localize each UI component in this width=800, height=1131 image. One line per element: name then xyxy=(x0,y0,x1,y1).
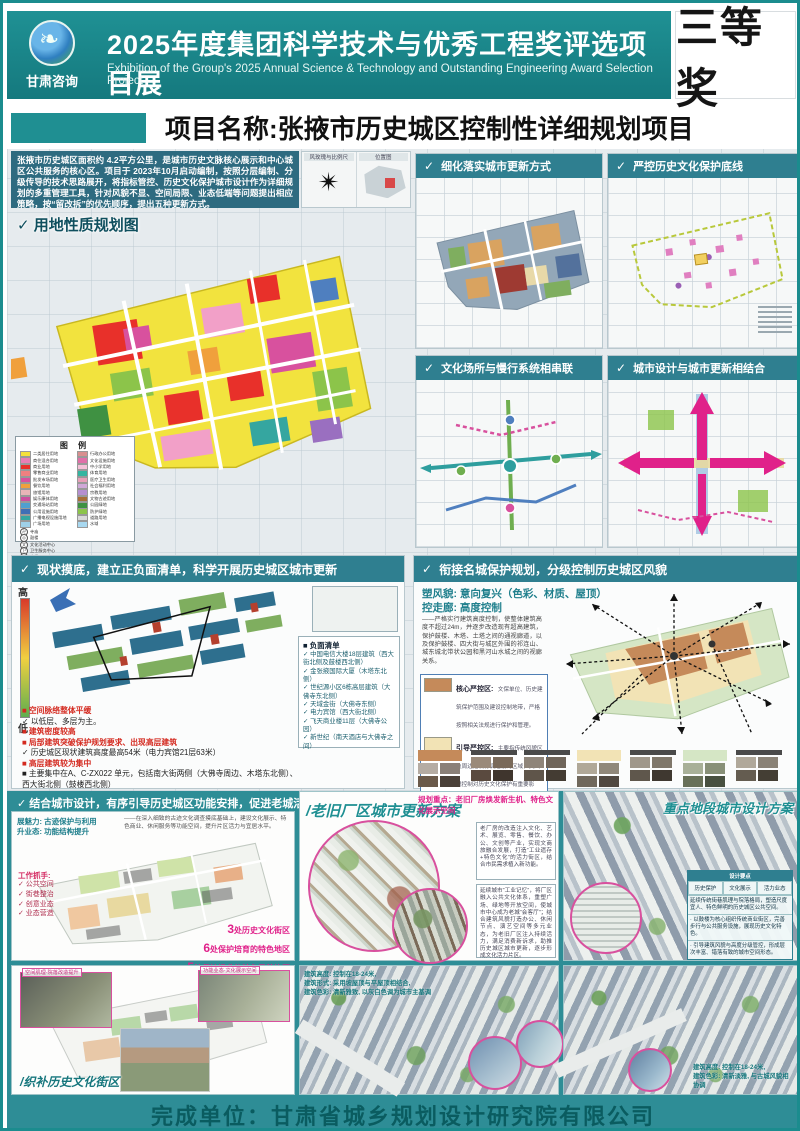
culture-panel: ✓ 文化场所与慢行系统相串联 xyxy=(415,355,603,548)
check-icon: ✓ xyxy=(422,562,432,576)
keyarea-plan-circle xyxy=(570,882,642,954)
refine-title-bar: ✓ 细化落实城市更新方式 xyxy=(416,154,602,178)
inset-caption-2: 功能业态·文化展示空间 xyxy=(200,966,260,975)
render-inset-1 xyxy=(20,972,112,1028)
design-map xyxy=(608,380,797,547)
list-item: ■ 空间脉络整体平缓 xyxy=(22,706,298,717)
check-icon: ✓ xyxy=(616,159,626,173)
factory-detail-circle-1 xyxy=(468,1036,522,1090)
list-item: ✓ 电力宾馆（西大街北侧） xyxy=(303,709,395,717)
list-item: ✓ 以低层、多层为主。 xyxy=(22,717,298,728)
check-icon: ✓ xyxy=(424,159,434,173)
list-item: ✓ 历史城区现状建筑高度最高54米（电力宾馆21层63米） xyxy=(22,748,298,759)
check-icon: ✓ xyxy=(20,562,30,576)
logo-text: 甘肃咨询 xyxy=(13,71,91,90)
factory-detail-circle-2 xyxy=(516,1020,564,1068)
list-item: ✓ 公共空间 xyxy=(18,880,78,890)
list-item: ✓ 街巷整治 xyxy=(18,890,78,900)
status-findings: ■ 空间脉络整体平缓✓ 以低层、多层为主。■ 建筑密度较高■ 局部建筑突破保护规… xyxy=(22,706,298,786)
culture-map xyxy=(416,380,602,547)
exhibition-title: 2025年度集团科学技术与优秀工程奖评选项目展 xyxy=(107,23,667,101)
factory-key: 规划重点：老旧厂房焕发新生机、特色文化展示空间 xyxy=(418,794,558,816)
intro-paragraph: 张掖市历史城区面积约 4.2平方公里，是城市历史文脉核心展示和中心城区公共服务的… xyxy=(11,151,299,208)
factory-photo-circle xyxy=(392,888,468,964)
style-title: 衔接名城保护规划，分级控制历史城区风貌 xyxy=(439,561,667,578)
refine-map xyxy=(416,178,602,348)
negative-list-title: ■ 负面清单 xyxy=(303,640,395,651)
keyarea-table: 设计要点 历史保护 文化展示 活力业态 延续传统街巷肌理与院落格局，塑造尺度宜人… xyxy=(687,870,793,960)
negative-list: ✓ 中国电信大楼18层建筑（西大街北侧及鼓楼西北侧）✓ 金张掖国际大厦（木塔东北… xyxy=(303,651,395,751)
refine-panel: ✓ 细化落实城市更新方式 xyxy=(415,153,603,349)
legend-right-column: 行政办公用地文化设施用地中小学用地体育用地医疗卫生用地社会福利用地宗教用地文物古… xyxy=(77,451,130,528)
keyarea-panel: 重点地段城市设计方案 设计要点 历史保护 文化展示 活力业态 延续传统街巷肌理与… xyxy=(563,791,798,961)
windrose-icon: ✴ xyxy=(318,169,340,195)
list-item: 水域 xyxy=(77,521,130,527)
render-inset-2 xyxy=(198,970,290,1022)
list-item: ✓ 金张掖国际大厦（木塔东北侧） xyxy=(303,668,395,685)
vitality-note: ——在深入细致的古迹文化调查摸底基础上，建设文化展示、特色商业、休闲服务等功能空… xyxy=(124,816,290,831)
legend-left-column: 二类居住用地商住混合用地商业用地零售商业用地批发市场用地餐饮用地旅馆用地娱乐康体… xyxy=(20,451,73,528)
design-title-bar: ✓ 城市设计与城市更新相结合 xyxy=(608,356,797,380)
culture-title: 文化场所与慢行系统相串联 xyxy=(441,360,573,376)
status-title: 现状摸底，建立正负面清单，科学开展历史城区城市更新 xyxy=(37,561,337,578)
status-axon-map xyxy=(36,584,306,704)
culture-title-bar: ✓ 文化场所与慢行系统相串联 xyxy=(416,356,602,380)
list-item: 核心严控区: 文保单位、历史建筑保护范围及建设控制地带，严格按照相关法规进行保护… xyxy=(424,678,544,732)
list-item: ✓ 创意业态 xyxy=(18,900,78,910)
design-panel: ✓ 城市设计与城市更新相结合 xyxy=(607,355,798,548)
check-icon: ✓ xyxy=(17,798,26,810)
strict-panel: ✓ 严控历史文化保护底线 xyxy=(607,153,798,349)
gradient-high-label: 高 xyxy=(18,584,28,599)
list-item: 建筑色彩: 清新淡雅, 与古城风貌相协调 xyxy=(693,1072,793,1090)
negative-list-box: ■ 负面清单 ✓ 中国电信大楼18层建筑（西大街北侧及鼓楼西北侧）✓ 金张掖国际… xyxy=(298,636,400,748)
status-title-bar: ✓ 现状摸底，建立正负面清单，科学开展历史城区城市更新 xyxy=(12,556,404,582)
status-content: 高 低 ■ 负面清单 ✓ 中国电信大楼18层建筑 xyxy=(12,582,404,788)
windrose-box: 风玫瑰与比例尺 ✴ xyxy=(302,152,357,207)
list-item: 建筑形式: 采用坡屋顶与平屋顶相结合, xyxy=(304,979,454,988)
strict-map xyxy=(608,178,797,348)
list-item: ✓ 中国电信大楼18层建筑（西大街北侧及鼓楼西北侧） xyxy=(303,651,395,668)
keyarea-title: 重点地段城市设计方案 xyxy=(663,798,793,817)
list-item: ✓ 世纪源小区6栋高层建筑（大佛寺东北侧） xyxy=(303,684,395,701)
location-label: 位置图 xyxy=(359,153,409,161)
road xyxy=(295,1019,405,1096)
footer-bar: 完成单位：甘肃省城乡规划设计研究院有限公司 xyxy=(7,1098,799,1131)
height-gradient-bar xyxy=(20,598,30,718)
location-map-shape xyxy=(361,164,406,198)
status-panel: ✓ 现状摸底，建立正负面清单，科学开展历史城区城市更新 高 低 xyxy=(11,555,405,789)
keyarea-bullet1: · 以鼓楼为核心组织传统商业街区，完善步行与公共服务设施，展现历史文化特色。 xyxy=(688,914,792,940)
factory-notes: 建筑高度: 控制在18-24米,建筑形式: 采用坡屋顶与平屋顶相结合,建筑色彩:… xyxy=(304,970,454,997)
list-item: 建筑高度: 控制在18-24米, xyxy=(304,970,454,979)
list-item: ✓ 新世纪（南天酒店与大佛寺之间） xyxy=(303,734,395,751)
keyarea-detail-circle xyxy=(628,1048,672,1092)
keyarea-aerial-render: 建筑高度: 控制在18-24米,建筑色彩: 清新淡雅, 与古城风貌相协调 xyxy=(563,965,798,1095)
header-banner: ❧ 甘肃咨询 2025年度集团科学技术与优秀工程奖评选项目展 Exhibitio… xyxy=(7,11,671,99)
footer-text: 完成单位：甘肃省城乡规划设计研究院有限公司 xyxy=(151,1099,655,1131)
list-item: ■ 高层建筑较为集中 xyxy=(22,759,298,770)
check-icon: ✓ xyxy=(424,361,434,375)
list-item: ■ 局部建筑突破保护规划要求、出现高层建筑 xyxy=(22,738,298,749)
check-icon: ✓ xyxy=(616,361,626,375)
block-panel: 空间肌理·院落改造提升 功能业态·文化展示空间 /织补历史文化街区 xyxy=(11,965,295,1095)
status-inset-map xyxy=(312,586,398,632)
list-item: 建筑色彩: 清新雅致, 以灰白色调为城市主基调 xyxy=(304,988,454,997)
title-accent-rect xyxy=(11,113,146,143)
list-item: 6处保护培育的特色地区 xyxy=(162,939,290,958)
project-title: 项目名称:张掖市历史城区控制性详细规划项目 xyxy=(165,109,795,146)
factory-panel: /老旧厂区城市更新方案 规划重点：老旧厂房焕发新生机、特色文化展示空间 老厂房的… xyxy=(299,791,559,961)
handles-list: ✓ 公共空间✓ 街巷整治✓ 创意业态✓ 业态营造 xyxy=(18,880,78,919)
leaf-icon: ❧ xyxy=(39,25,65,55)
keyarea-notes: 建筑高度: 控制在18-24米,建筑色彩: 清新淡雅, 与古城风貌相协调 xyxy=(693,1063,793,1090)
street-render xyxy=(120,1028,210,1092)
inset-caption-1: 空间肌理·院落改造提升 xyxy=(22,968,82,977)
list-item: ✓ 飞天商业楼11层（大佛寺公园） xyxy=(303,718,395,735)
location-highlight xyxy=(385,178,395,188)
style-iso-map xyxy=(552,584,797,744)
design-title: 城市设计与城市更新相结合 xyxy=(633,360,765,376)
list-item: ✓ 业态营造 xyxy=(18,909,78,919)
landuse-map: 图 例 二类居住用地商住混合用地商业用地零售商业用地批发市场用地餐饮用地旅馆用地… xyxy=(11,208,411,548)
legend-title: 图 例 xyxy=(20,440,130,451)
exhibition-subtitle: Exhibition of the Group's 2025 Annual Sc… xyxy=(107,63,667,87)
style-paragraph: ——严格实行建筑高度控制，使整体建筑高度不超过24m，并逐步改造现有超高建筑，保… xyxy=(422,616,542,666)
keyarea-bullet2: · 引导建筑风貌与高度分级管控，形成层次丰富、错落有致的城市空间形态。 xyxy=(688,940,792,959)
refine-title: 细化落实城市更新方式 xyxy=(441,158,551,174)
poster: ❧ 甘肃咨询 2025年度集团科学技术与优秀工程奖评选项目展 Exhibitio… xyxy=(0,0,800,1131)
landuse-legend: 图 例 二类居住用地商住混合用地商业用地零售商业用地批发市场用地餐饮用地旅馆用地… xyxy=(15,436,135,542)
keyarea-table-cols: 历史保护 文化展示 活力业态 xyxy=(688,881,792,895)
style-line2: 控走廊: 高度控制 xyxy=(422,600,502,615)
factory-para1: 老厂房的改造注入文化、艺术、展览、零售、餐饮、办公、文创等产业，实现文商旅融合发… xyxy=(476,822,556,880)
strict-title-bar: ✓ 严控历史文化保护底线 xyxy=(608,154,797,178)
award-label: 三等奖 xyxy=(676,0,795,116)
keyarea-table-title: 设计要点 xyxy=(688,871,792,881)
minimap-panel: 风玫瑰与比例尺 ✴ 位置图 xyxy=(301,151,411,208)
vitality-map-panel: 展魅力: 古迹保护与利用 升业态: 功能结构提升 ——在深入细致的古迹文化调查摸… xyxy=(11,811,295,961)
location-box: 位置图 xyxy=(357,152,411,207)
windrose-label: 风玫瑰与比例尺 xyxy=(304,153,354,161)
list-item: 3处历史文化街区 xyxy=(162,920,290,939)
style-panel: ✓ 衔接名城保护规划，分级控制历史城区风貌 塑风貌: 意向复兴（色彩、材质、屋顶… xyxy=(413,555,798,789)
list-item: ■ 建筑密度较高 xyxy=(22,727,298,738)
list-item: 广场用地 xyxy=(20,521,73,527)
factory-aerial-render: 建筑高度: 控制在18-24米,建筑形式: 采用坡屋顶与平屋顶相结合,建筑色彩:… xyxy=(299,965,559,1095)
list-item: 建筑高度: 控制在18-24米, xyxy=(693,1063,793,1072)
award-badge: 三等奖 xyxy=(675,11,796,99)
block-label: /织补历史文化街区 xyxy=(20,1073,119,1090)
factory-para2: 延续城市“工业记忆”，将厂区融入公共文化体系，重塑广场、绿地等开放空间，使城市中… xyxy=(476,884,556,958)
strict-title: 严控历史文化保护底线 xyxy=(633,158,743,174)
list-item: ■ 主要集中在A、C-ZX022 单元，包括南大街两侧（大佛寺周边、木塔东北侧）… xyxy=(22,769,298,790)
keyarea-table-note: 延续传统街巷肌理与院落格局，塑造尺度宜人、特色鲜明的历史城区公共空间。 xyxy=(688,895,792,914)
style-content: 塑风貌: 意向复兴（色彩、材质、屋顶） 控走廊: 高度控制 ——严格实行建筑高度… xyxy=(414,582,797,788)
style-title-bar: ✓ 衔接名城保护规划，分级控制历史城区风貌 xyxy=(414,556,797,582)
